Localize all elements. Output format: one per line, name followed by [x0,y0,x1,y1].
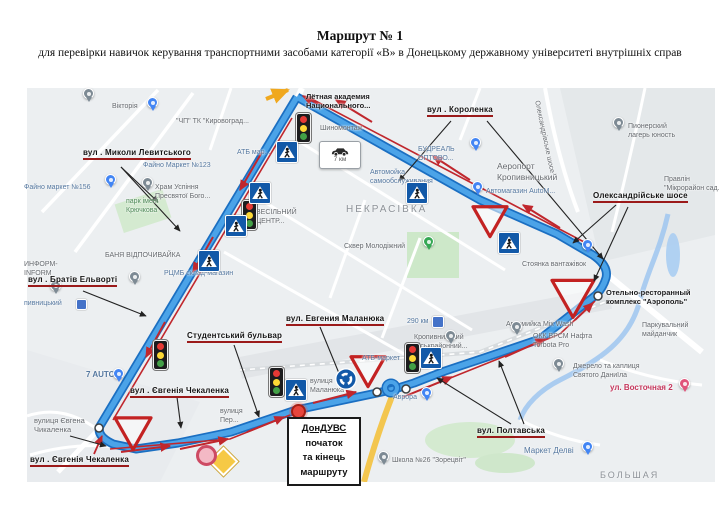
page-subtitle: для перевірки навичок керування транспор… [10,45,710,62]
park-area [295,443,345,467]
route-waypoint-dot [402,385,410,393]
route-waypoint-dot [95,424,103,432]
yellow-arrow [266,90,288,99]
annotation-arrow [437,378,511,424]
park-area [475,453,535,473]
map-base-canvas [27,88,715,482]
map-block [27,350,200,482]
route-waypoint-dot [594,292,602,300]
water-pond [666,233,680,277]
page-title: Маршрут № 1 [0,28,720,44]
route-waypoint-dot [373,388,381,396]
yield-sign-icon [351,357,385,387]
annotation-arrow [83,291,146,316]
annotation-arrow [499,361,524,424]
yield-sign-icon [473,207,507,237]
document-page: Маршрут № 1 для перевірки навичок керува… [0,0,720,509]
park-area [425,422,515,458]
park-kriuchkova [115,189,172,233]
